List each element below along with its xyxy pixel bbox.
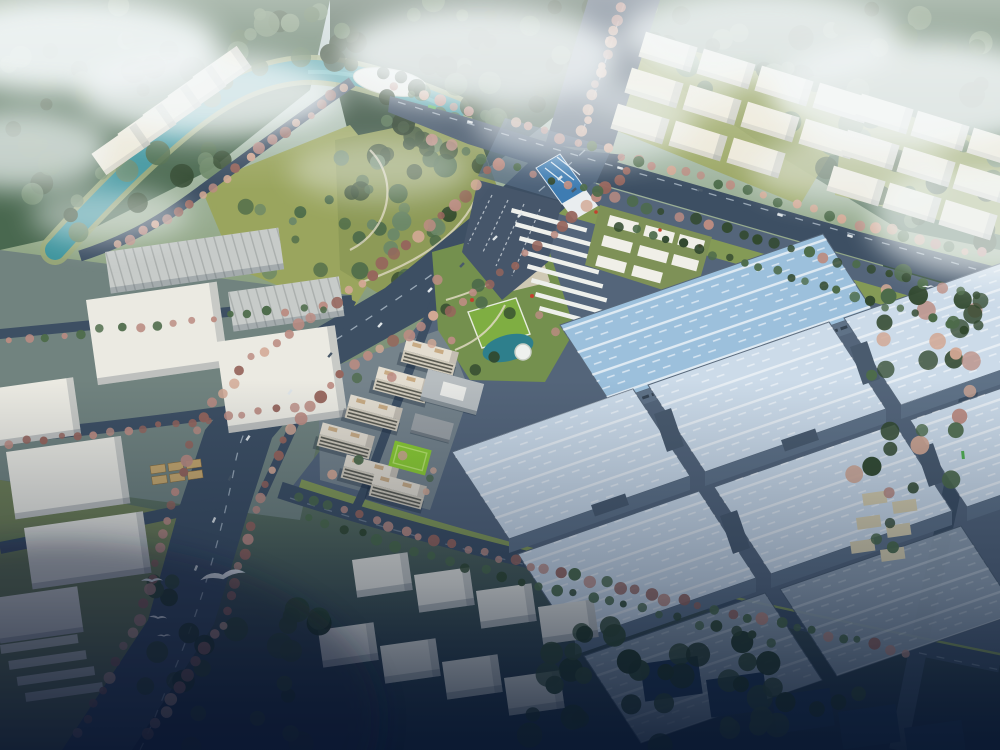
tree: [437, 212, 444, 219]
tree: [351, 262, 368, 279]
tree: [793, 200, 802, 209]
tree: [867, 265, 876, 274]
tree: [679, 238, 688, 247]
tree: [449, 199, 461, 211]
tree: [557, 221, 568, 232]
tree: [289, 217, 297, 225]
tree: [866, 370, 877, 381]
tree: [950, 347, 962, 359]
tree: [469, 289, 477, 297]
tree: [928, 313, 937, 322]
tree: [247, 353, 254, 360]
tree: [153, 321, 163, 331]
tree: [363, 351, 373, 361]
tree: [832, 258, 842, 268]
tree: [754, 263, 762, 271]
tree: [170, 320, 177, 327]
tree: [773, 266, 782, 275]
tree: [908, 286, 928, 306]
tree: [445, 306, 456, 317]
tree: [25, 334, 34, 343]
tree: [301, 304, 308, 311]
round-pavilion: [515, 344, 531, 360]
tree: [6, 337, 12, 343]
tree: [945, 320, 954, 329]
aerial-rendering: [0, 0, 1000, 750]
tree: [199, 191, 207, 199]
tree: [293, 318, 305, 330]
tree: [294, 206, 306, 218]
tree: [973, 291, 981, 299]
tree: [801, 277, 809, 285]
tree: [305, 313, 315, 323]
tree: [810, 205, 818, 213]
tree: [448, 337, 456, 345]
tree: [496, 269, 504, 277]
tree: [281, 309, 289, 317]
tree: [760, 191, 767, 198]
tree: [488, 351, 499, 362]
tree: [726, 254, 733, 261]
tree: [459, 190, 472, 203]
tree: [657, 208, 664, 215]
tree: [367, 270, 378, 281]
tree: [633, 225, 641, 233]
tree: [255, 204, 266, 215]
tree: [641, 203, 653, 215]
tree: [412, 231, 424, 243]
tree: [662, 236, 669, 243]
tree: [62, 333, 68, 339]
tree: [832, 286, 840, 294]
tree: [929, 333, 946, 350]
tree: [773, 198, 783, 208]
tree: [627, 195, 639, 207]
tree: [41, 334, 49, 342]
tree: [76, 330, 86, 340]
tree: [243, 310, 251, 318]
tree: [388, 248, 400, 260]
tree: [956, 287, 965, 296]
tree: [285, 330, 294, 339]
tree: [694, 244, 704, 254]
rendering-canvas: [0, 0, 1000, 750]
tree: [432, 275, 442, 285]
tree: [877, 315, 893, 331]
tree: [211, 316, 217, 322]
tree: [375, 345, 384, 354]
tree: [551, 231, 559, 239]
tree: [820, 281, 829, 290]
tree: [475, 296, 487, 308]
tree: [787, 245, 794, 252]
tree: [960, 326, 969, 335]
tree: [937, 283, 948, 294]
tree: [424, 219, 436, 231]
tree: [912, 309, 919, 316]
tree: [881, 288, 897, 304]
tree: [817, 253, 828, 264]
tree: [234, 366, 244, 376]
tree: [387, 335, 399, 347]
tree: [313, 263, 328, 278]
tree: [581, 200, 593, 212]
tree: [335, 370, 343, 378]
tree: [227, 311, 234, 318]
tree: [535, 311, 543, 319]
tree: [262, 306, 272, 316]
tree: [614, 222, 624, 232]
tree: [752, 234, 762, 244]
tree: [521, 249, 528, 256]
tree: [769, 238, 780, 249]
tree: [427, 339, 436, 348]
tree: [741, 259, 749, 267]
tree: [897, 305, 904, 312]
tree: [804, 246, 815, 257]
tree: [325, 195, 334, 204]
tree: [917, 278, 928, 289]
tree: [136, 323, 145, 332]
tree: [401, 240, 411, 250]
tree: [824, 211, 835, 222]
tree: [722, 222, 733, 233]
tree: [404, 330, 416, 342]
tree: [708, 251, 717, 260]
tree: [504, 307, 516, 319]
tree: [962, 351, 981, 370]
tree: [902, 273, 911, 282]
tree: [837, 214, 846, 223]
tree: [349, 359, 360, 370]
tree: [850, 292, 861, 303]
tree: [609, 192, 620, 203]
tree: [331, 297, 343, 309]
tree: [704, 220, 714, 230]
tree: [392, 212, 411, 231]
tree: [387, 228, 399, 240]
tree: [973, 320, 983, 330]
tree: [551, 327, 560, 336]
tree: [339, 218, 351, 230]
tree: [359, 280, 367, 288]
tree: [739, 230, 748, 239]
tree: [690, 213, 702, 225]
tree: [485, 280, 495, 290]
tree: [881, 304, 889, 312]
tree: [118, 323, 127, 332]
tree: [428, 311, 438, 321]
tree: [320, 306, 327, 313]
tree: [855, 221, 866, 232]
tree: [675, 212, 685, 222]
tree: [345, 286, 353, 294]
tree: [416, 322, 426, 332]
tree: [470, 364, 481, 375]
tree: [459, 298, 467, 306]
tree: [532, 241, 543, 252]
tree: [877, 361, 894, 378]
tree: [511, 262, 519, 270]
tree: [291, 236, 299, 244]
tree: [188, 317, 195, 324]
tree: [566, 211, 578, 223]
tree: [376, 257, 389, 270]
tree: [877, 332, 891, 346]
tree: [918, 350, 938, 370]
tree: [885, 270, 893, 278]
tree: [865, 296, 875, 306]
tree: [95, 324, 104, 333]
tree: [273, 339, 281, 347]
tree: [649, 231, 658, 240]
tree: [852, 260, 860, 268]
tree: [788, 274, 796, 282]
tree: [238, 199, 254, 215]
tree: [260, 347, 270, 357]
